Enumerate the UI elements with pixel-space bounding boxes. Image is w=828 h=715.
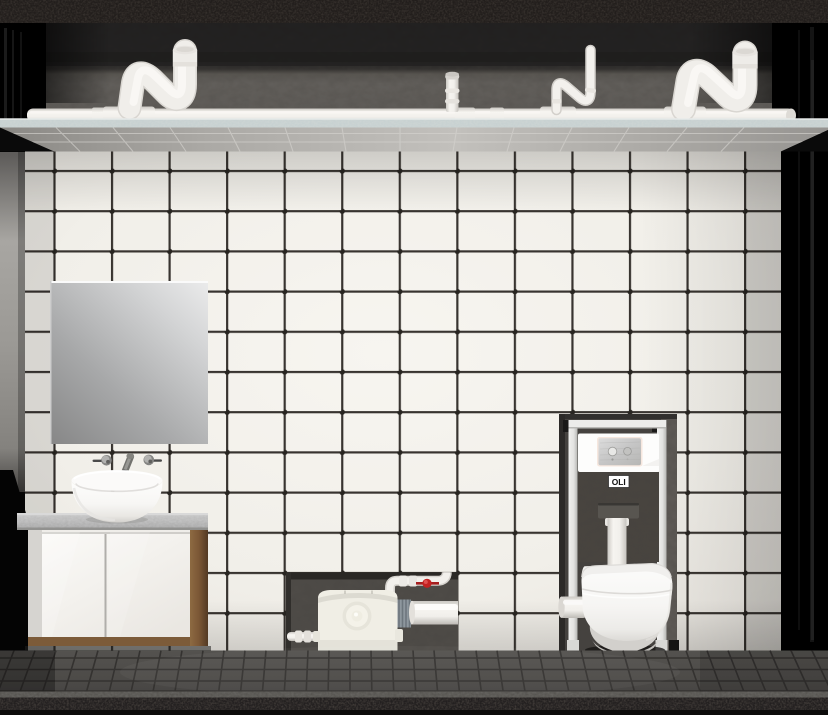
svg-text:OLI: OLI — [612, 477, 626, 487]
